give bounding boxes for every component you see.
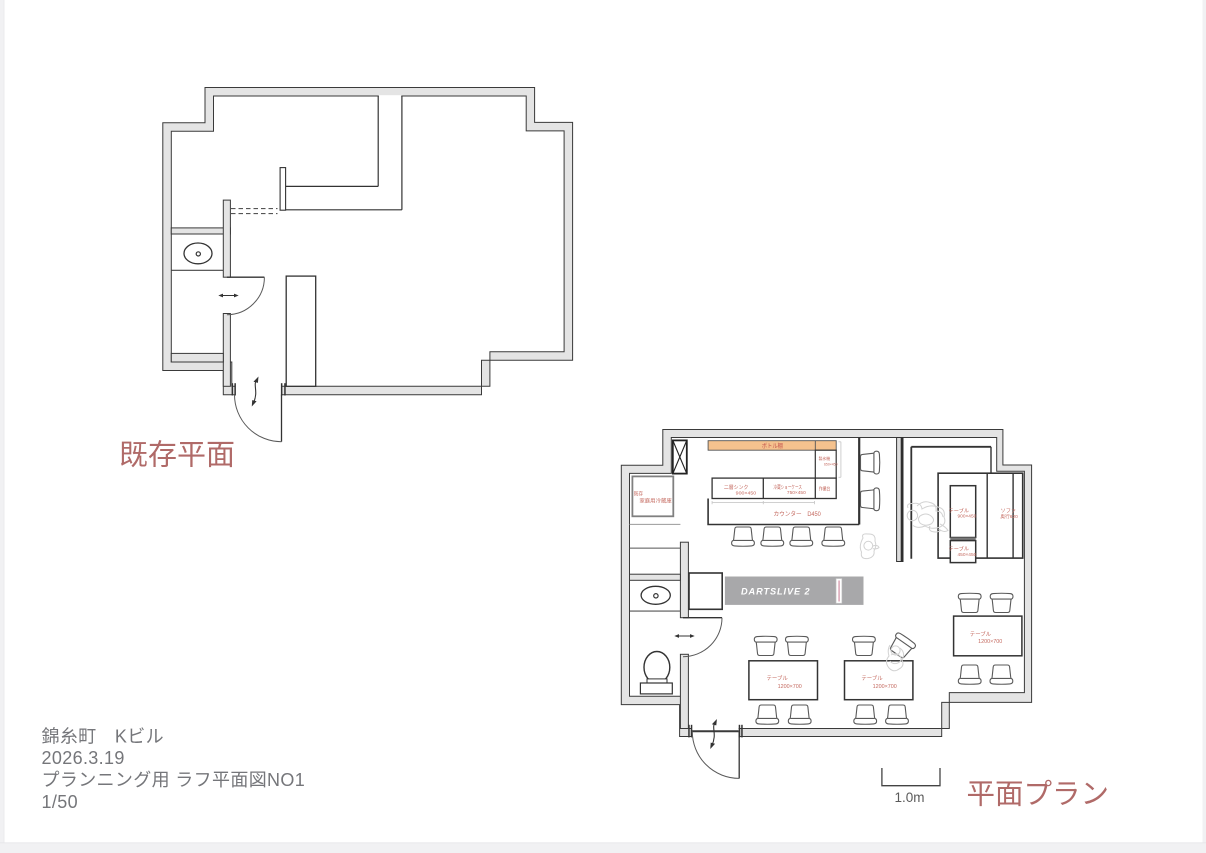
svg-text:ソファ: ソファ xyxy=(1001,507,1017,514)
svg-text:DARTSLIVE 2: DARTSLIVE 2 xyxy=(741,586,810,596)
svg-text:1200×700: 1200×700 xyxy=(778,684,802,690)
svg-text:1/50: 1/50 xyxy=(42,792,78,812)
svg-text:テーブル: テーブル xyxy=(949,506,969,514)
svg-text:平面プラン: 平面プラン xyxy=(967,779,1110,811)
svg-text:1200×700: 1200×700 xyxy=(873,684,897,690)
svg-text:カウンター D450: カウンター D450 xyxy=(774,510,822,518)
svg-text:750×450: 750×450 xyxy=(787,490,806,496)
svg-text:既存: 既存 xyxy=(634,489,644,497)
svg-text:二層シンク: 二層シンク xyxy=(724,484,749,491)
svg-text:900×450: 900×450 xyxy=(958,514,977,520)
svg-text:2026.3.19: 2026.3.19 xyxy=(42,748,125,768)
svg-text:奥行620: 奥行620 xyxy=(1000,513,1018,520)
svg-text:テーブル: テーブル xyxy=(767,674,789,682)
svg-text:450×450: 450×450 xyxy=(958,552,977,558)
svg-text:家庭用冷蔵庫: 家庭用冷蔵庫 xyxy=(639,496,672,504)
svg-text:既存平面: 既存平面 xyxy=(119,439,235,472)
svg-text:テーブル: テーブル xyxy=(970,630,992,638)
svg-text:テーブル: テーブル xyxy=(949,545,969,553)
svg-text:錦糸町 Kビル: 錦糸町 Kビル xyxy=(42,727,164,747)
svg-text:ボトル棚: ボトル棚 xyxy=(762,442,783,450)
svg-text:900×450: 900×450 xyxy=(736,490,757,496)
svg-text:テーブル: テーブル xyxy=(861,674,883,682)
svg-text:作業台: 作業台 xyxy=(819,485,831,493)
svg-text:1200×700: 1200×700 xyxy=(978,639,1002,645)
svg-text:650×450: 650×450 xyxy=(824,462,838,467)
svg-text:プランニング用 ラフ平面図NO1: プランニング用 ラフ平面図NO1 xyxy=(42,770,306,790)
svg-text:1.0m: 1.0m xyxy=(895,790,925,805)
svg-text:冷蔵ショーケース: 冷蔵ショーケース xyxy=(774,483,803,491)
